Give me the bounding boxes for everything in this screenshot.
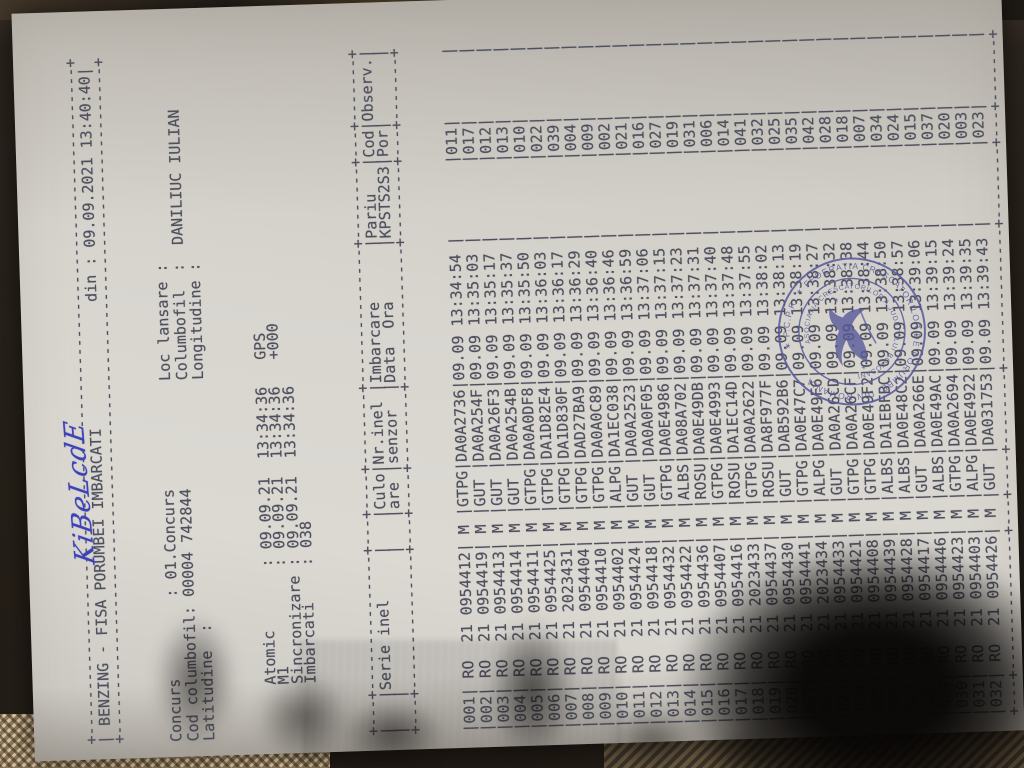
table-header: +---+---------------+---+----+--------+-… [343, 12, 422, 736]
stamp-star-right: ✶ [831, 296, 841, 303]
meta-section: Concurs : 01.Concurs Loc lansare : Cod c… [146, 18, 218, 742]
photo-scene: +---------------------------------------… [0, 0, 1024, 768]
sync-section: Atomic : 09.09.21 13:34:36 GPS M1 : 09.0… [243, 15, 320, 739]
stamp-pigeon-icon [824, 298, 880, 370]
dark-fabric-foreground [674, 538, 1024, 768]
title-box: +---------------------------------------… [62, 21, 127, 745]
